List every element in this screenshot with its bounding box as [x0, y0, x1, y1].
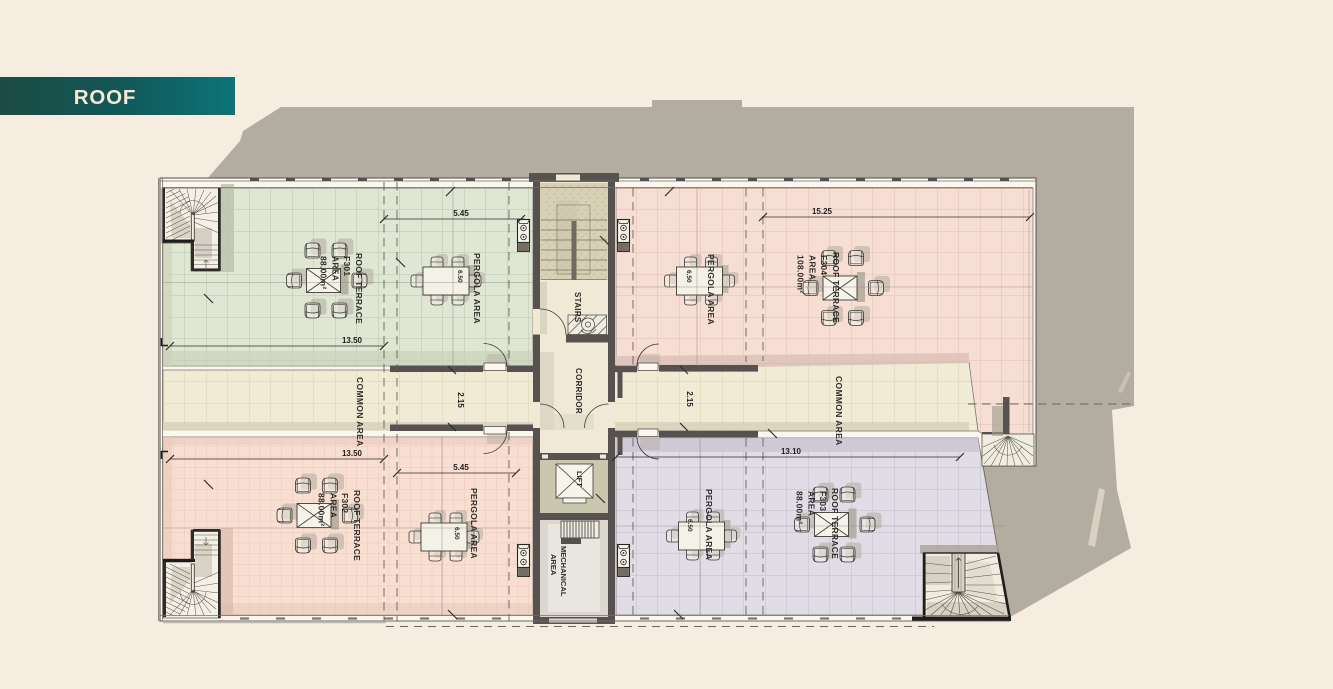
svg-text:6.50: 6.50	[453, 527, 460, 540]
svg-text:15.25: 15.25	[812, 207, 833, 216]
svg-text:6.50: 6.50	[686, 519, 693, 532]
svg-text:STAIRS: STAIRS	[573, 292, 582, 323]
svg-text:6.50: 6.50	[456, 270, 463, 283]
svg-text:PERGOLA AREA: PERGOLA AREA	[704, 489, 714, 560]
svg-text:COMMON AREA: COMMON AREA	[834, 376, 844, 446]
svg-text:COMMON AREA: COMMON AREA	[355, 377, 365, 447]
svg-text:PERGOLA AREA: PERGOLA AREA	[469, 488, 479, 559]
svg-text:CORRIDOR: CORRIDOR	[574, 368, 583, 414]
svg-text:PERGOLA AREA: PERGOLA AREA	[472, 253, 482, 324]
svg-text:ROOF: ROOF	[74, 86, 136, 109]
svg-text:13.50: 13.50	[342, 336, 363, 345]
svg-text:2.15: 2.15	[685, 391, 694, 407]
svg-text:5.45: 5.45	[453, 463, 469, 472]
svg-text:LIFT: LIFT	[575, 471, 584, 487]
svg-text:PERGOLA AREA: PERGOLA AREA	[706, 254, 716, 325]
svg-text:2.15: 2.15	[456, 392, 465, 408]
svg-text:5.45: 5.45	[453, 209, 469, 218]
svg-text:13.10: 13.10	[781, 447, 802, 456]
svg-text:6.50: 6.50	[685, 270, 692, 283]
svg-text:13.50: 13.50	[342, 449, 363, 458]
